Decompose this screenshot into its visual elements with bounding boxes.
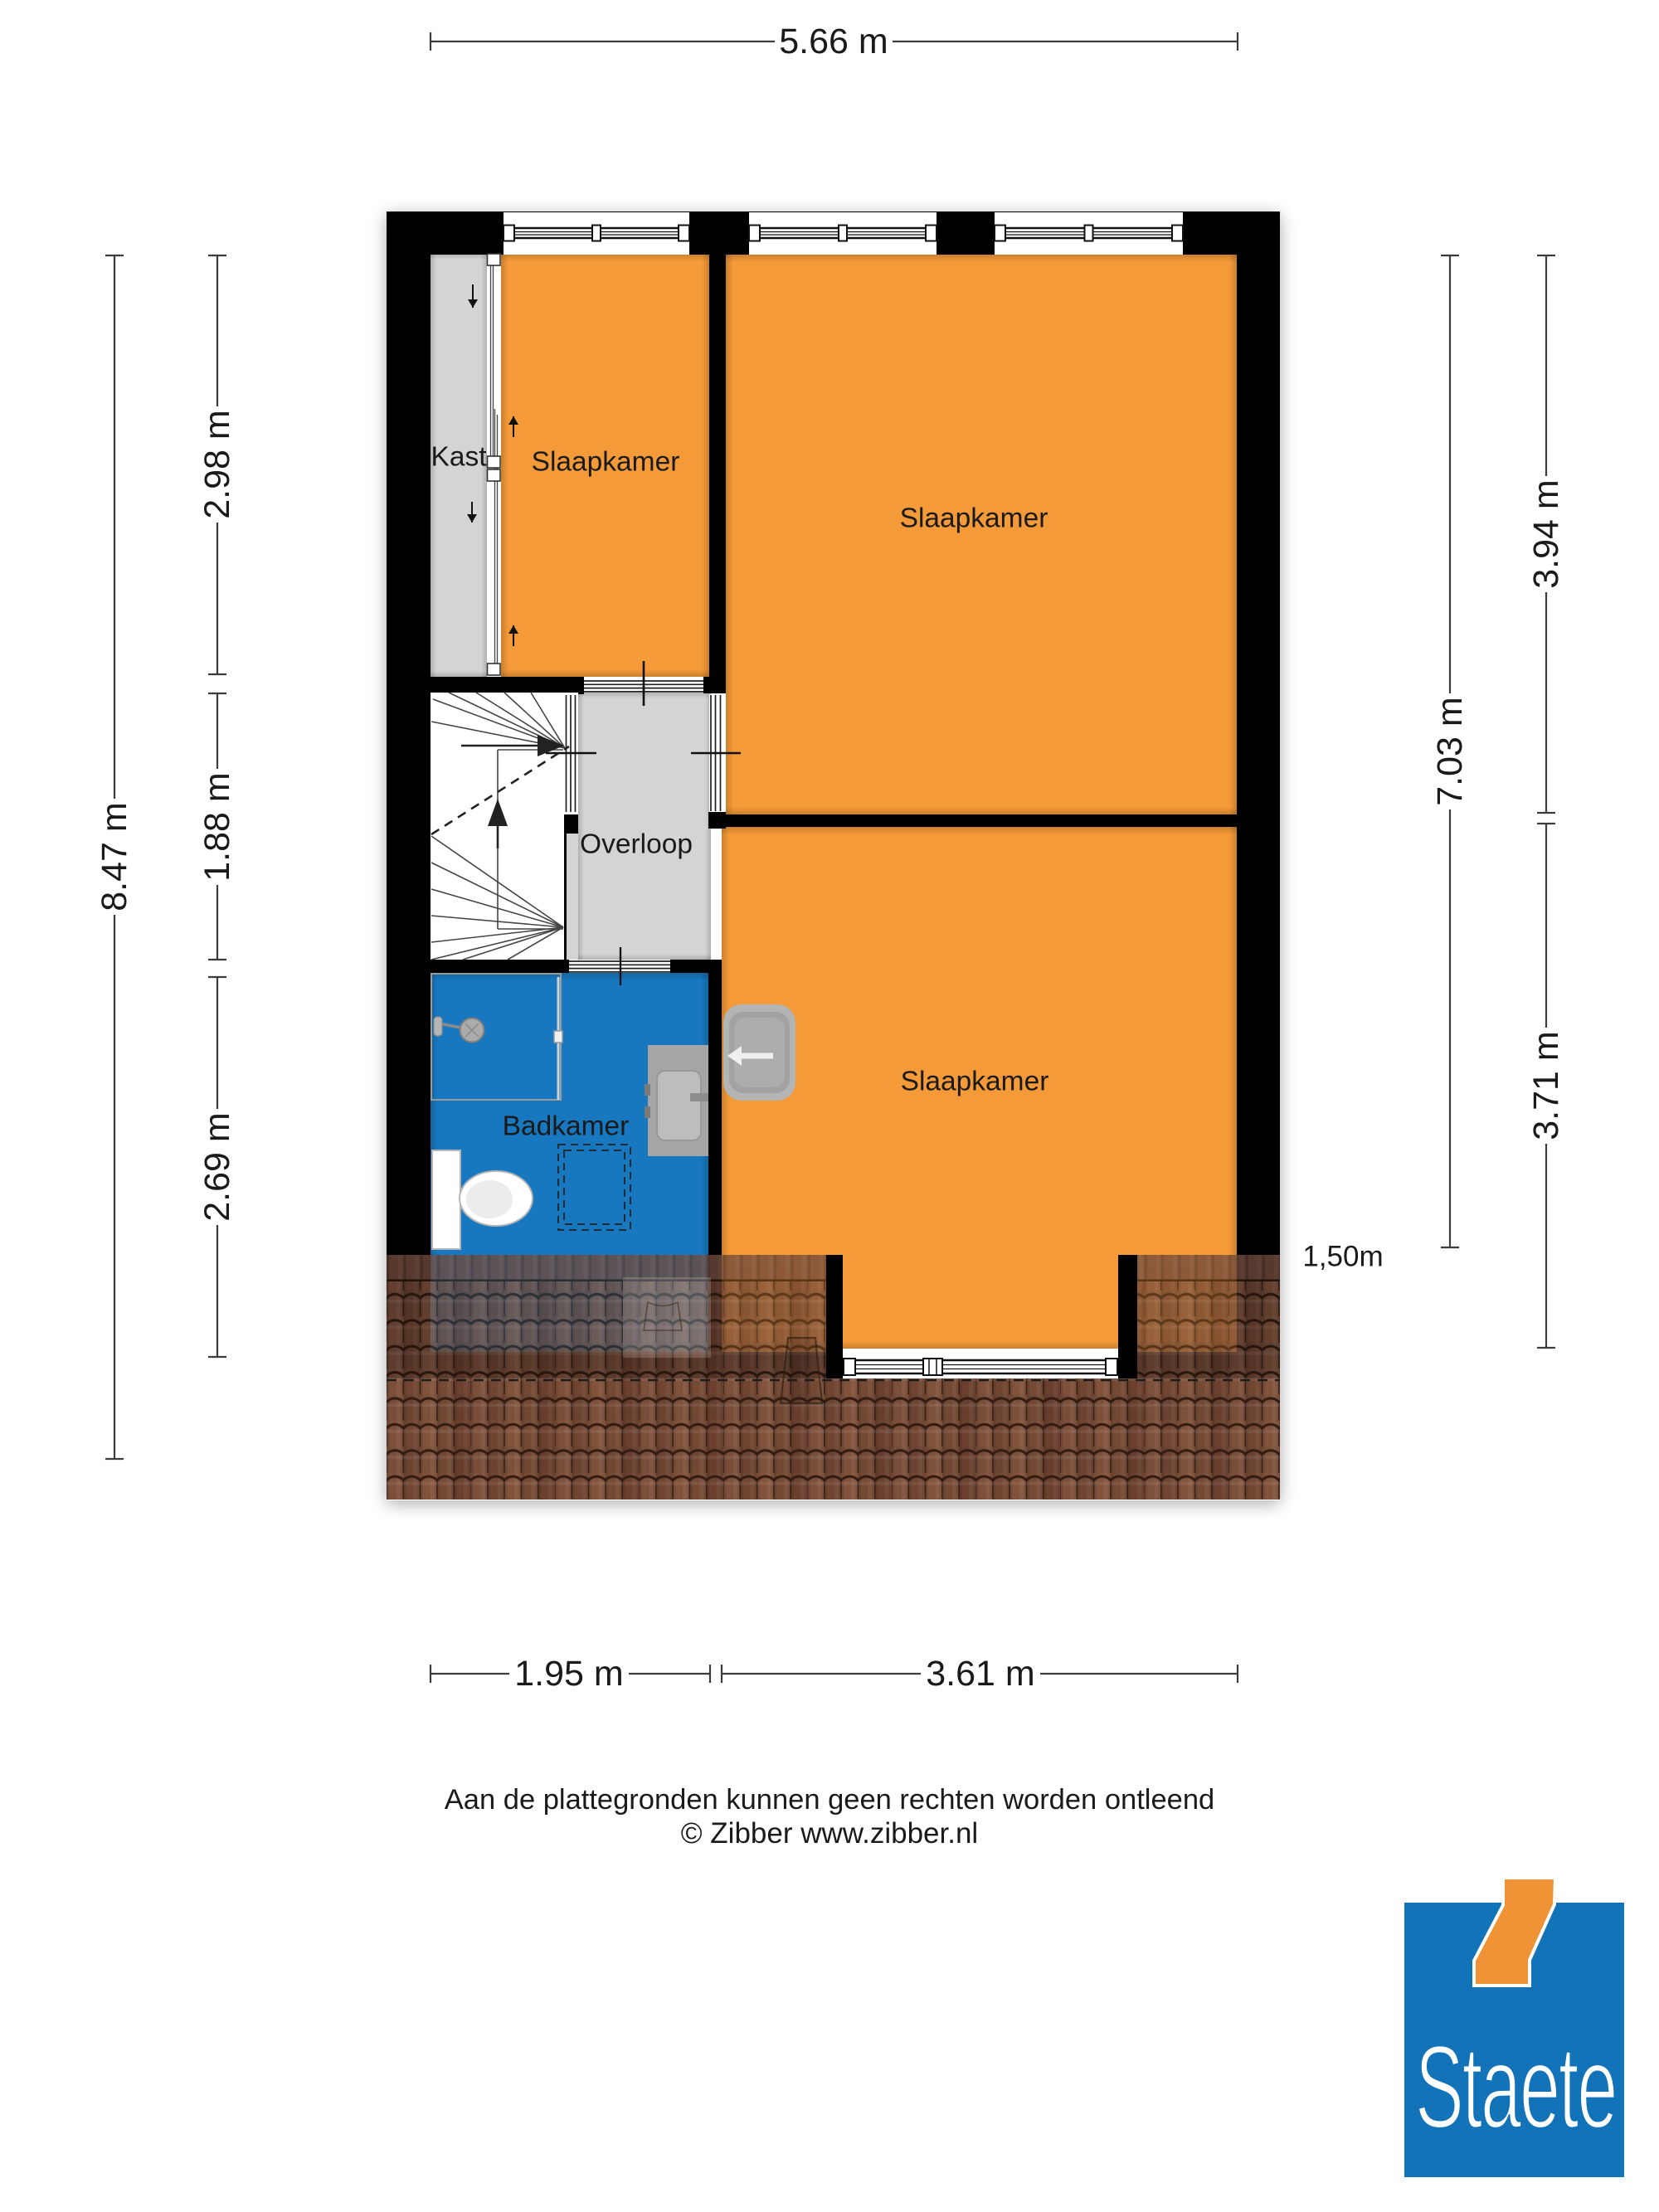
svg-text:Kast: Kast	[431, 442, 487, 473]
svg-text:3.61 m: 3.61 m	[926, 1654, 1034, 1694]
svg-text:3.94 m: 3.94 m	[1526, 479, 1566, 588]
svg-text:Slaapkamer: Slaapkamer	[900, 503, 1048, 534]
svg-text:1.95 m: 1.95 m	[514, 1654, 623, 1694]
svg-text:Slaapkamer: Slaapkamer	[901, 1067, 1049, 1097]
svg-text:8.47 m: 8.47 m	[95, 802, 134, 911]
svg-text:7.03 m: 7.03 m	[1430, 697, 1470, 805]
svg-text:5.66 m: 5.66 m	[779, 22, 888, 61]
svg-text:Badkamer: Badkamer	[503, 1111, 630, 1142]
svg-text:3.71 m: 3.71 m	[1526, 1031, 1566, 1140]
svg-text:1,50m: 1,50m	[1302, 1241, 1383, 1273]
svg-text:Staete: Staete	[1415, 2022, 1618, 2154]
svg-text:Aan de plattegronden kunnen ge: Aan de plattegronden kunnen geen rechten…	[445, 1784, 1214, 1816]
svg-text:2.98 m: 2.98 m	[197, 410, 237, 518]
svg-text:Overloop: Overloop	[580, 829, 693, 860]
svg-text:Slaapkamer: Slaapkamer	[532, 447, 680, 478]
svg-text:2.69 m: 2.69 m	[197, 1112, 237, 1221]
svg-text:© Zibber www.zibber.nl: © Zibber www.zibber.nl	[681, 1817, 978, 1850]
svg-text:1.88 m: 1.88 m	[197, 772, 237, 881]
